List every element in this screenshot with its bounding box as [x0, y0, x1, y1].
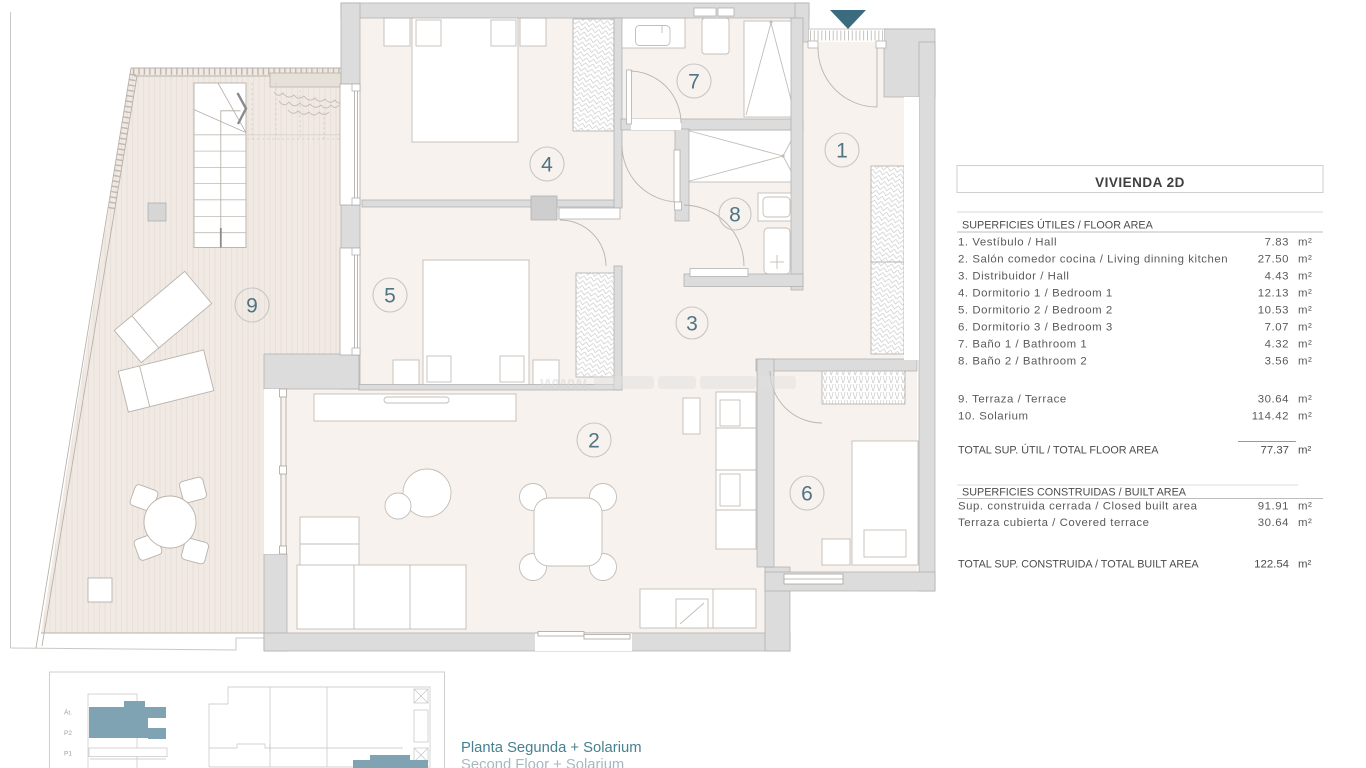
- svg-text:3: 3: [686, 313, 698, 336]
- svg-text:8. Baño 2 / Bathroom 2: 8. Baño 2 / Bathroom 2: [958, 356, 1087, 368]
- svg-text:m²: m²: [1298, 288, 1312, 300]
- svg-text:3.56: 3.56: [1265, 356, 1289, 368]
- svg-text:4: 4: [541, 154, 553, 177]
- svg-text:4.32: 4.32: [1265, 339, 1289, 351]
- svg-text:27.50: 27.50: [1258, 254, 1289, 266]
- svg-text:7.83: 7.83: [1265, 237, 1289, 249]
- svg-text:114.42: 114.42: [1252, 411, 1289, 423]
- svg-text:1: 1: [836, 140, 848, 163]
- svg-text:Sup. construida cerrada / Clos: Sup. construida cerrada / Closed built a…: [958, 501, 1198, 513]
- svg-text:5. Dormitorio 2 / Bedroom 2: 5. Dormitorio 2 / Bedroom 2: [958, 305, 1113, 317]
- svg-text:2. Salón comedor cocina / Livi: 2. Salón comedor cocina / Living dinning…: [958, 254, 1228, 266]
- svg-text:SUPERFICIES CONSTRUIDAS / BUIL: SUPERFICIES CONSTRUIDAS / BUILT AREA: [962, 487, 1187, 499]
- svg-text:91.91: 91.91: [1258, 501, 1289, 513]
- svg-text:m²: m²: [1298, 501, 1312, 513]
- svg-text:m²: m²: [1298, 339, 1312, 351]
- svg-text:5: 5: [384, 285, 396, 308]
- svg-text:P1: P1: [64, 751, 72, 758]
- svg-text:m²: m²: [1298, 559, 1311, 571]
- svg-text:3. Distribuidor / Hall: 3. Distribuidor / Hall: [958, 271, 1069, 283]
- svg-text:m²: m²: [1298, 237, 1312, 249]
- svg-text:Terraza cubierta / Covered ter: Terraza cubierta / Covered terrace: [958, 517, 1150, 529]
- svg-text:m²: m²: [1298, 322, 1312, 334]
- svg-text:m²: m²: [1298, 445, 1311, 457]
- svg-text:P2: P2: [64, 730, 72, 737]
- svg-text:TOTAL SUP. CONSTRUIDA / TOTAL: TOTAL SUP. CONSTRUIDA / TOTAL BUILT AREA: [958, 559, 1199, 571]
- svg-text:m²: m²: [1298, 517, 1312, 529]
- svg-text:7. Baño 1 / Bathroom 1: 7. Baño 1 / Bathroom 1: [958, 339, 1087, 351]
- svg-text:www.: www.: [539, 373, 591, 395]
- svg-text:4.43: 4.43: [1265, 271, 1289, 283]
- svg-text:10. Solarium: 10. Solarium: [958, 411, 1029, 423]
- svg-text:m²: m²: [1298, 394, 1312, 406]
- svg-text:7.07: 7.07: [1265, 322, 1289, 334]
- svg-text:m²: m²: [1298, 356, 1312, 368]
- svg-text:4. Dormitorio 1 / Bedroom 1: 4. Dormitorio 1 / Bedroom 1: [958, 288, 1113, 300]
- svg-text:Second Floor + Solarium: Second Floor + Solarium: [461, 757, 624, 768]
- svg-text:30.64: 30.64: [1258, 517, 1289, 529]
- svg-text:m²: m²: [1298, 271, 1312, 283]
- svg-text:122.54: 122.54: [1254, 559, 1289, 571]
- svg-text:m²: m²: [1298, 411, 1312, 423]
- svg-text:7: 7: [688, 71, 700, 94]
- svg-text:2: 2: [588, 430, 600, 453]
- svg-text:m²: m²: [1298, 305, 1312, 317]
- svg-text:6: 6: [801, 483, 813, 506]
- svg-text:TOTAL SUP. ÚTIL / TOTAL FLOOR: TOTAL SUP. ÚTIL / TOTAL FLOOR AREA: [958, 444, 1159, 457]
- svg-text:6. Dormitorio 3 / Bedroom 3: 6. Dormitorio 3 / Bedroom 3: [958, 322, 1113, 334]
- svg-text:Át.: Át.: [64, 708, 72, 717]
- svg-text:m²: m²: [1298, 254, 1312, 266]
- svg-text:30.64: 30.64: [1258, 394, 1289, 406]
- svg-text:77.37: 77.37: [1260, 445, 1289, 457]
- svg-text:SUPERFICIES ÚTILES / FLOOR ARE: SUPERFICIES ÚTILES / FLOOR AREA: [962, 219, 1154, 232]
- svg-text:8: 8: [729, 204, 741, 227]
- svg-text:9. Terraza / Terrace: 9. Terraza / Terrace: [958, 394, 1067, 406]
- svg-text:VIVIENDA 2D: VIVIENDA 2D: [1095, 175, 1185, 190]
- svg-text:Planta Segunda + Solarium: Planta Segunda + Solarium: [461, 740, 642, 756]
- svg-text:12.13: 12.13: [1258, 288, 1289, 300]
- svg-text:1. Vestíbulo / Hall: 1. Vestíbulo / Hall: [958, 237, 1057, 249]
- svg-text:9: 9: [246, 295, 258, 318]
- svg-text:10.53: 10.53: [1258, 305, 1289, 317]
